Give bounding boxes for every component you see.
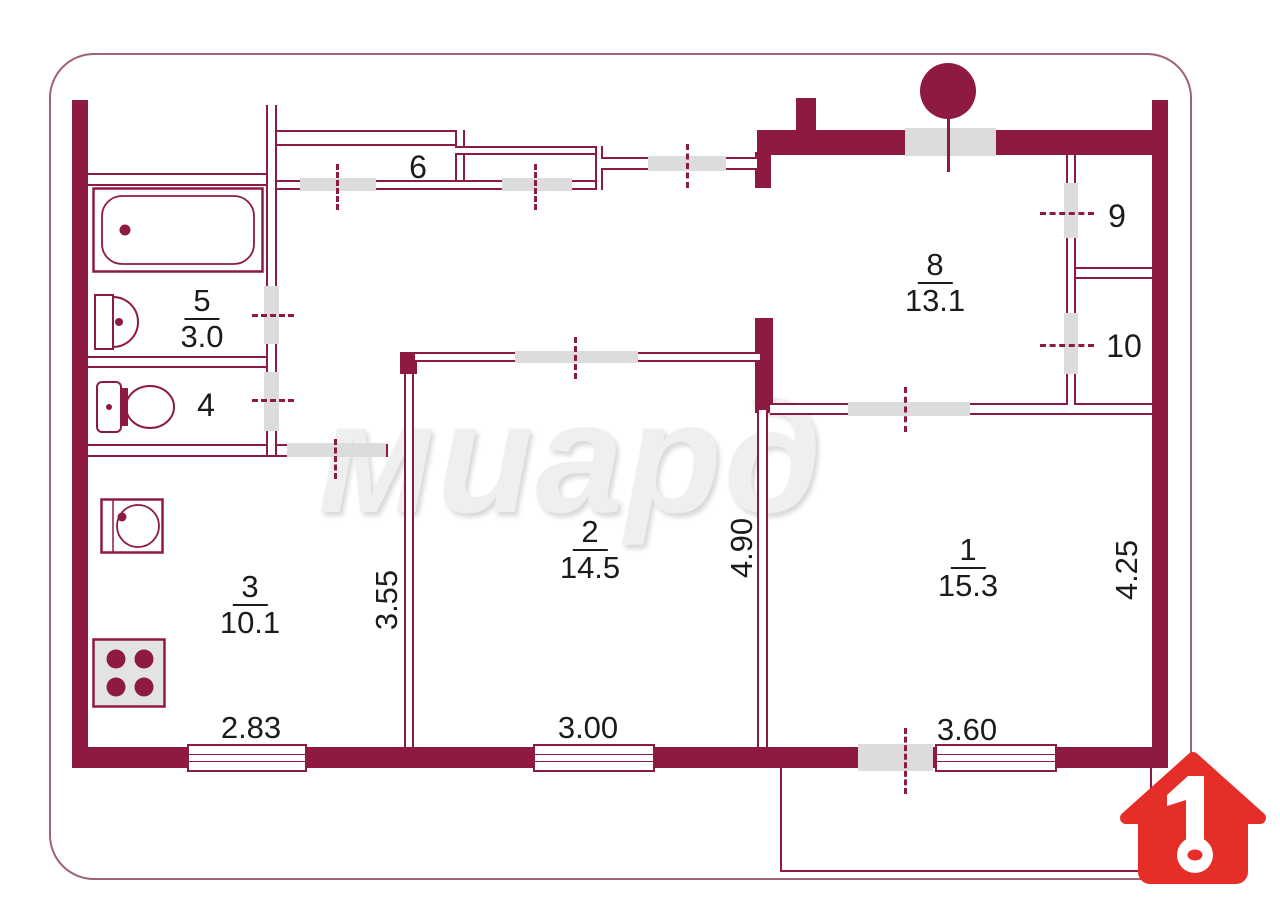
room-number: 2 bbox=[572, 515, 607, 551]
door-axis-bathroom bbox=[252, 314, 294, 317]
room-number: 3 bbox=[232, 570, 267, 606]
room-area: 13.1 bbox=[905, 284, 965, 318]
wall-top-foot bbox=[755, 152, 771, 188]
room-number: 1 bbox=[950, 533, 985, 569]
balcony-bottom-line bbox=[780, 870, 1152, 872]
agency-logo bbox=[1118, 750, 1268, 890]
balcony-left-line bbox=[780, 768, 782, 872]
room-number: 8 bbox=[917, 248, 952, 284]
bathtub-icon bbox=[92, 187, 264, 273]
dim-room1-window: 3.60 bbox=[937, 712, 997, 748]
bath-top-wall bbox=[88, 173, 268, 186]
room-label-storage10: 10 bbox=[1106, 328, 1142, 365]
column-marker-stem bbox=[947, 112, 950, 172]
opening-top-wall bbox=[905, 128, 996, 156]
wall-left bbox=[72, 100, 88, 768]
hall-kitchen-wall-cap bbox=[386, 444, 388, 457]
door-axis-closet-1 bbox=[336, 164, 339, 210]
door-axis-balcony bbox=[904, 728, 907, 794]
room-label-kitchen3: 3 10.1 bbox=[220, 570, 280, 640]
stove-icon bbox=[92, 638, 166, 708]
room-area: 10.1 bbox=[220, 606, 280, 640]
house-key-icon bbox=[1118, 750, 1268, 890]
wall-right bbox=[1152, 100, 1168, 768]
room-label-closet: 6 bbox=[409, 149, 427, 186]
room-number: 5 bbox=[184, 284, 219, 320]
room9-room10-divider bbox=[1076, 267, 1152, 279]
door-opening-room9 bbox=[1064, 183, 1078, 238]
dim-kitchen-window: 2.83 bbox=[221, 710, 281, 746]
kitchen-sink-icon bbox=[100, 498, 164, 554]
room1-room2-wall bbox=[757, 410, 768, 747]
room-label-bathroom: 5 3.0 bbox=[180, 284, 223, 354]
bath-wc-divider-wall bbox=[88, 356, 268, 368]
window-room1 bbox=[935, 744, 1057, 772]
door-opening-closet-2 bbox=[502, 178, 572, 191]
door-axis-room1 bbox=[904, 387, 907, 432]
door-axis-room9 bbox=[1040, 212, 1094, 215]
dim-room1-depth: 4.25 bbox=[1109, 540, 1145, 600]
dim-room2-depth: 4.90 bbox=[724, 518, 760, 578]
room-label-room1: 1 15.3 bbox=[938, 533, 998, 603]
closet-top-wall bbox=[277, 130, 465, 146]
room-label-room2: 2 14.5 bbox=[560, 515, 620, 585]
closet2-top-wall bbox=[455, 146, 603, 155]
window-room2 bbox=[533, 744, 655, 772]
dim-kitchen-width: 3.55 bbox=[369, 570, 405, 630]
washbasin-icon bbox=[93, 293, 141, 351]
door-axis-closet-2 bbox=[534, 164, 537, 210]
door-axis-room2 bbox=[574, 337, 577, 379]
door-opening-room1 bbox=[848, 402, 970, 416]
wall-pier-room2 bbox=[755, 318, 773, 413]
door-axis-corridor-top bbox=[686, 144, 689, 188]
balcony-door-opening bbox=[858, 744, 933, 771]
door-axis-wc bbox=[252, 399, 294, 402]
door-axis-room10 bbox=[1040, 344, 1094, 347]
window-kitchen bbox=[187, 744, 307, 772]
column-marker-icon bbox=[920, 63, 976, 119]
door-axis-kitchen bbox=[334, 439, 337, 479]
dim-room2-window: 3.00 bbox=[558, 710, 618, 746]
room-label-storage9: 9 bbox=[1108, 198, 1126, 235]
toilet-icon bbox=[95, 380, 177, 434]
room-label-living8: 8 13.1 bbox=[905, 248, 965, 318]
room-area: 3.0 bbox=[180, 320, 223, 354]
room-area: 15.3 bbox=[938, 569, 998, 603]
kitchen-room2-wall bbox=[404, 374, 414, 747]
room-label-wc: 4 bbox=[197, 387, 215, 424]
wall-top-stub bbox=[796, 98, 816, 132]
floorplan-canvas: миард bbox=[0, 0, 1280, 901]
room-area: 14.5 bbox=[560, 551, 620, 585]
